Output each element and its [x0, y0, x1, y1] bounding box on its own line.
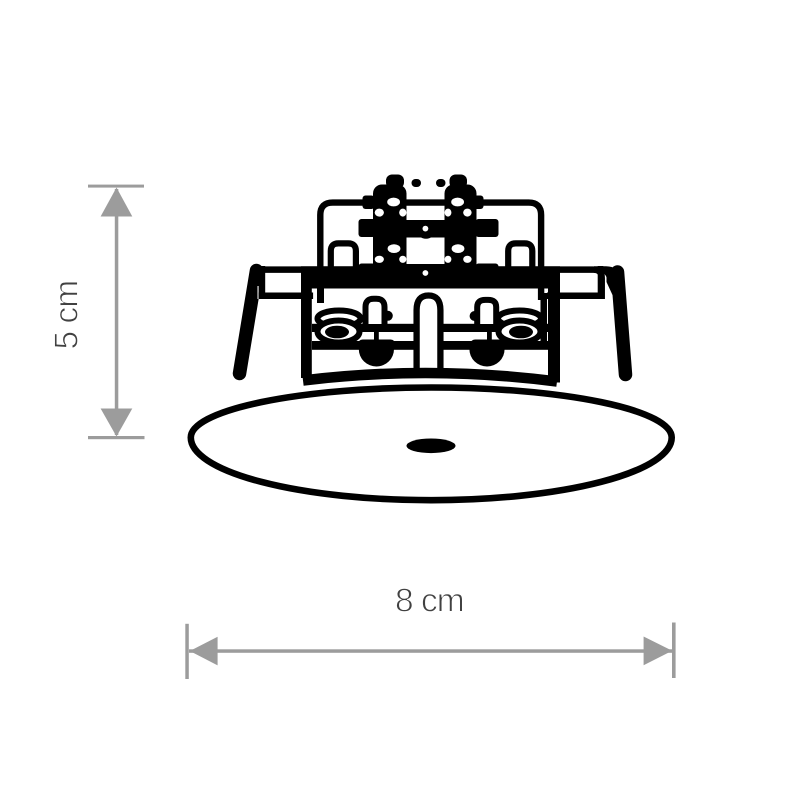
svg-text:8 cm: 8 cm [395, 583, 464, 620]
svg-text:5 cm: 5 cm [49, 281, 86, 350]
